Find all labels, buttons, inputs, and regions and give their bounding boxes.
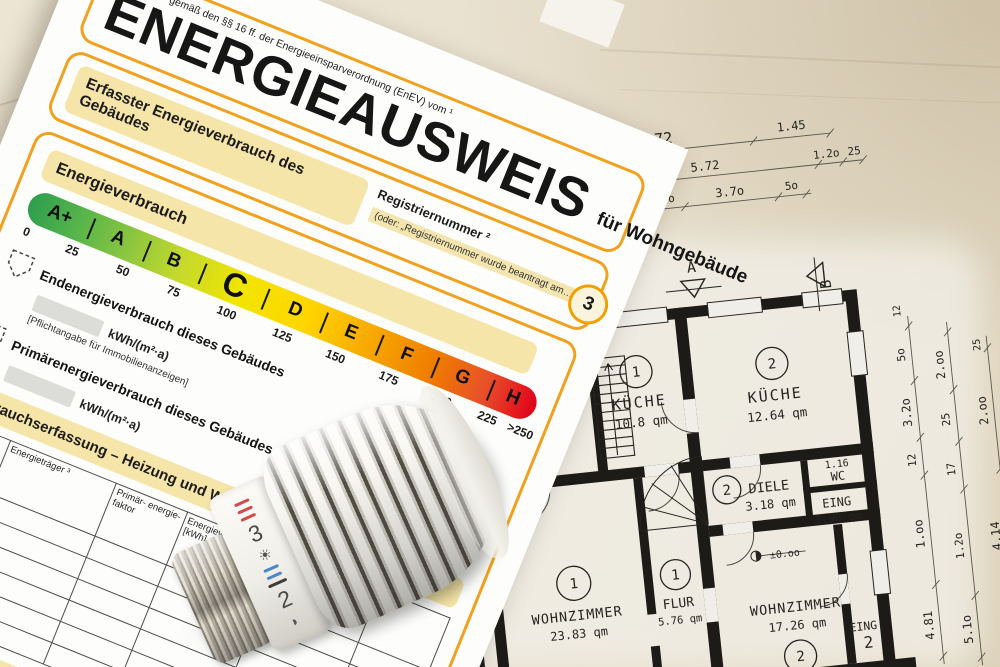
dim-label: 4.14 xyxy=(988,521,1000,551)
room-tag: 1 xyxy=(631,364,641,381)
dim-label: 25 xyxy=(971,338,983,351)
dim-label: 12 xyxy=(891,304,903,317)
room-area: 3.18 qm xyxy=(745,495,797,514)
room-label: FLUR xyxy=(662,595,695,613)
room-tag: 2 xyxy=(767,356,777,373)
room-area: 17.26 qm xyxy=(768,615,827,635)
moon-icon: ◗ xyxy=(288,613,301,629)
room-tag: 1 xyxy=(670,567,680,584)
scale-tick: 75 xyxy=(165,282,183,300)
room-eingang1: EING 1.98 qm xyxy=(813,493,863,527)
room-tag: 2 xyxy=(722,482,732,499)
room-label: WOHNZIMMER xyxy=(531,603,623,628)
room-tag: 2 xyxy=(863,632,875,652)
scale-divider xyxy=(486,380,496,401)
room-label: WC xyxy=(830,468,846,483)
house-pointer-icon xyxy=(1,247,38,285)
scale-letter: H xyxy=(502,386,523,412)
section-b-label: B xyxy=(816,279,835,290)
room-area: 1.98 qm xyxy=(815,509,863,527)
scale-tick: 150 xyxy=(323,347,347,367)
dimension-lines-right xyxy=(904,308,1000,667)
room-label: KÜCHE xyxy=(747,382,804,407)
dim-label: 2.oo xyxy=(931,350,948,380)
scale-tick: 125 xyxy=(270,325,294,345)
dim-label: 1.2o xyxy=(812,146,840,162)
sun-icon: ☀ xyxy=(256,546,274,565)
room-wc: 1.16 WC xyxy=(824,458,850,484)
scale-divider xyxy=(319,312,329,333)
dial-number-3: 3 xyxy=(245,521,266,547)
room-tag: 1 xyxy=(569,576,579,593)
dim-label: 1.45 xyxy=(776,118,806,135)
dim-label: 25 xyxy=(939,412,953,427)
room-label: KÜCHE xyxy=(611,390,668,415)
room-kueche2: 2 KÜCHE 12.64 qm xyxy=(740,344,808,425)
dim-label: 1.oo xyxy=(911,519,928,549)
scale-letter: A xyxy=(108,226,129,252)
dim-label: 17 xyxy=(944,462,958,477)
scale-letter: F xyxy=(397,343,416,368)
scale-tick: >250 xyxy=(505,420,535,443)
scale-letter: A+ xyxy=(44,201,75,231)
room-wohnzimmer2: WOHNZIMMER 17.26 qm 2 xyxy=(749,595,847,667)
dim-label: 5.72 xyxy=(690,158,720,175)
dim-label: 4.81 xyxy=(921,610,938,640)
dim-label: 3.2o xyxy=(898,397,915,427)
room-tag: 2 xyxy=(796,649,806,666)
scale-tick: 225 xyxy=(475,408,499,428)
scale-divider xyxy=(374,335,384,356)
dim-label: 3.7o xyxy=(715,183,745,200)
scale-letter: B xyxy=(163,249,184,275)
dim-label: 5.1o xyxy=(959,614,976,644)
room-area: 5.76 qm xyxy=(658,612,703,629)
scale-letter: E xyxy=(341,320,361,345)
scale-letter-current: C xyxy=(217,263,253,307)
room-area: 12.64 qm xyxy=(747,404,808,425)
room-area: 10.8 qm xyxy=(614,412,668,432)
dim-label: 1.2o xyxy=(952,532,968,560)
scale-divider xyxy=(141,241,151,262)
dim-label: 12 xyxy=(905,453,919,468)
scale-tick: 0 xyxy=(21,224,32,239)
room-flur: 1 FLUR 5.76 qm xyxy=(652,557,703,628)
scale-tick: 50 xyxy=(114,262,132,280)
room-area: 23.83 qm xyxy=(550,624,609,644)
room-wohnzimmer1: 1 WOHNZIMMER 23.83 qm xyxy=(527,562,626,646)
scale-divider xyxy=(197,263,207,284)
dimension-labels-right: 5o 3.2o 12 1.oo 4.81 2.oo 25 17 1.2o 5.1… xyxy=(888,296,1000,654)
room-label: DIELE xyxy=(748,477,790,497)
room-diele: 2 DIELE 3.18 qm xyxy=(711,469,796,517)
room-label: WOHNZIMMER xyxy=(749,595,841,620)
photo-scene: A B ±0.oo BALKON 1 xyxy=(0,0,1000,667)
scale-letter: D xyxy=(285,298,306,324)
dim-label: 5o xyxy=(784,179,799,193)
house-pointer-icon xyxy=(0,317,9,355)
scale-tick: 25 xyxy=(63,241,81,259)
dim-label: 2.oo xyxy=(974,395,991,425)
dim-label: 5o xyxy=(894,348,908,363)
room-label: EING xyxy=(822,494,852,511)
dim-label: 25 xyxy=(847,144,862,158)
scale-divider xyxy=(86,218,96,239)
level-marker: ±0.oo xyxy=(750,546,806,564)
scale-divider xyxy=(260,289,270,310)
dial-number-2: 2 xyxy=(274,586,295,612)
